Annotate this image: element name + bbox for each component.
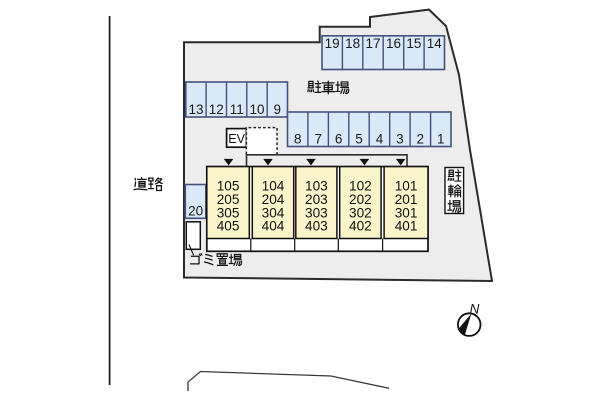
svg-text:1: 1 (437, 132, 445, 147)
svg-text:3: 3 (396, 132, 404, 147)
svg-text:17: 17 (365, 36, 380, 51)
svg-text:12: 12 (209, 102, 224, 117)
svg-text:404: 404 (262, 219, 285, 234)
svg-text:8: 8 (294, 132, 302, 147)
svg-text:13: 13 (188, 102, 203, 117)
svg-text:7: 7 (314, 132, 322, 147)
svg-text:11: 11 (230, 102, 244, 117)
svg-text:EV: EV (228, 132, 245, 146)
svg-text:16: 16 (386, 36, 401, 51)
svg-text:9: 9 (274, 102, 282, 117)
svg-text:14: 14 (427, 36, 443, 51)
svg-text:N: N (470, 302, 480, 317)
svg-text:403: 403 (305, 219, 328, 234)
svg-text:6: 6 (335, 132, 343, 147)
svg-text:15: 15 (406, 36, 421, 51)
svg-text:19: 19 (325, 36, 340, 51)
svg-text:18: 18 (345, 36, 360, 51)
svg-text:20: 20 (188, 203, 203, 218)
svg-text:2: 2 (417, 132, 425, 147)
svg-text:4: 4 (376, 132, 384, 147)
svg-text:402: 402 (349, 219, 372, 234)
svg-text:10: 10 (249, 102, 264, 117)
svg-text:401: 401 (395, 219, 418, 234)
svg-text:405: 405 (217, 219, 240, 234)
svg-text:5: 5 (355, 132, 363, 147)
